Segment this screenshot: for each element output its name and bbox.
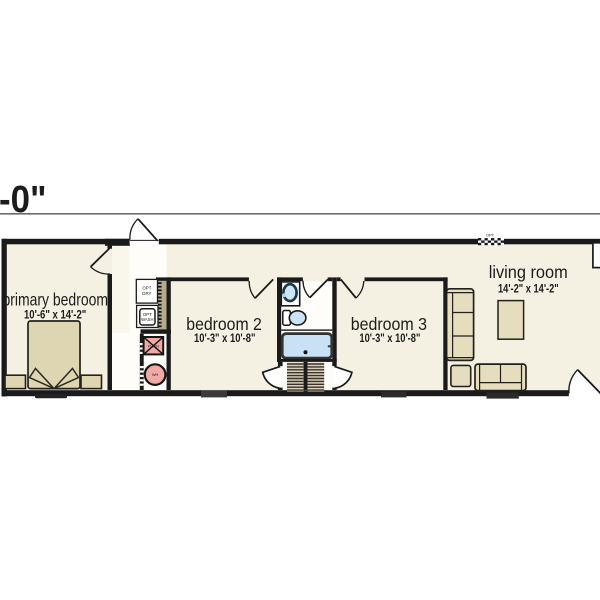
svg-text:bedroom 2: bedroom 2 xyxy=(186,314,261,334)
svg-text:DRY: DRY xyxy=(142,291,151,296)
svg-text:WH: WH xyxy=(152,372,159,377)
svg-text:10'-6" x 14'-2": 10'-6" x 14'-2" xyxy=(24,309,86,322)
svg-text:-0": -0" xyxy=(0,179,47,221)
svg-text:14'-2" x 14'-2": 14'-2" x 14'-2" xyxy=(498,283,559,296)
svg-text:bedroom 3: bedroom 3 xyxy=(351,314,427,334)
svg-text:WASH: WASH xyxy=(141,317,153,322)
svg-text:primary bedroom: primary bedroom xyxy=(3,289,109,309)
svg-text:10'-3" x 10'-8": 10'-3" x 10'-8" xyxy=(359,333,420,345)
svg-text:10'-3" x 10'-8": 10'-3" x 10'-8" xyxy=(194,333,256,345)
svg-text:living room: living room xyxy=(489,262,568,282)
svg-text:OPT: OPT xyxy=(142,285,151,290)
svg-text:OPT: OPT xyxy=(486,232,495,237)
svg-text:OPT: OPT xyxy=(143,312,152,317)
